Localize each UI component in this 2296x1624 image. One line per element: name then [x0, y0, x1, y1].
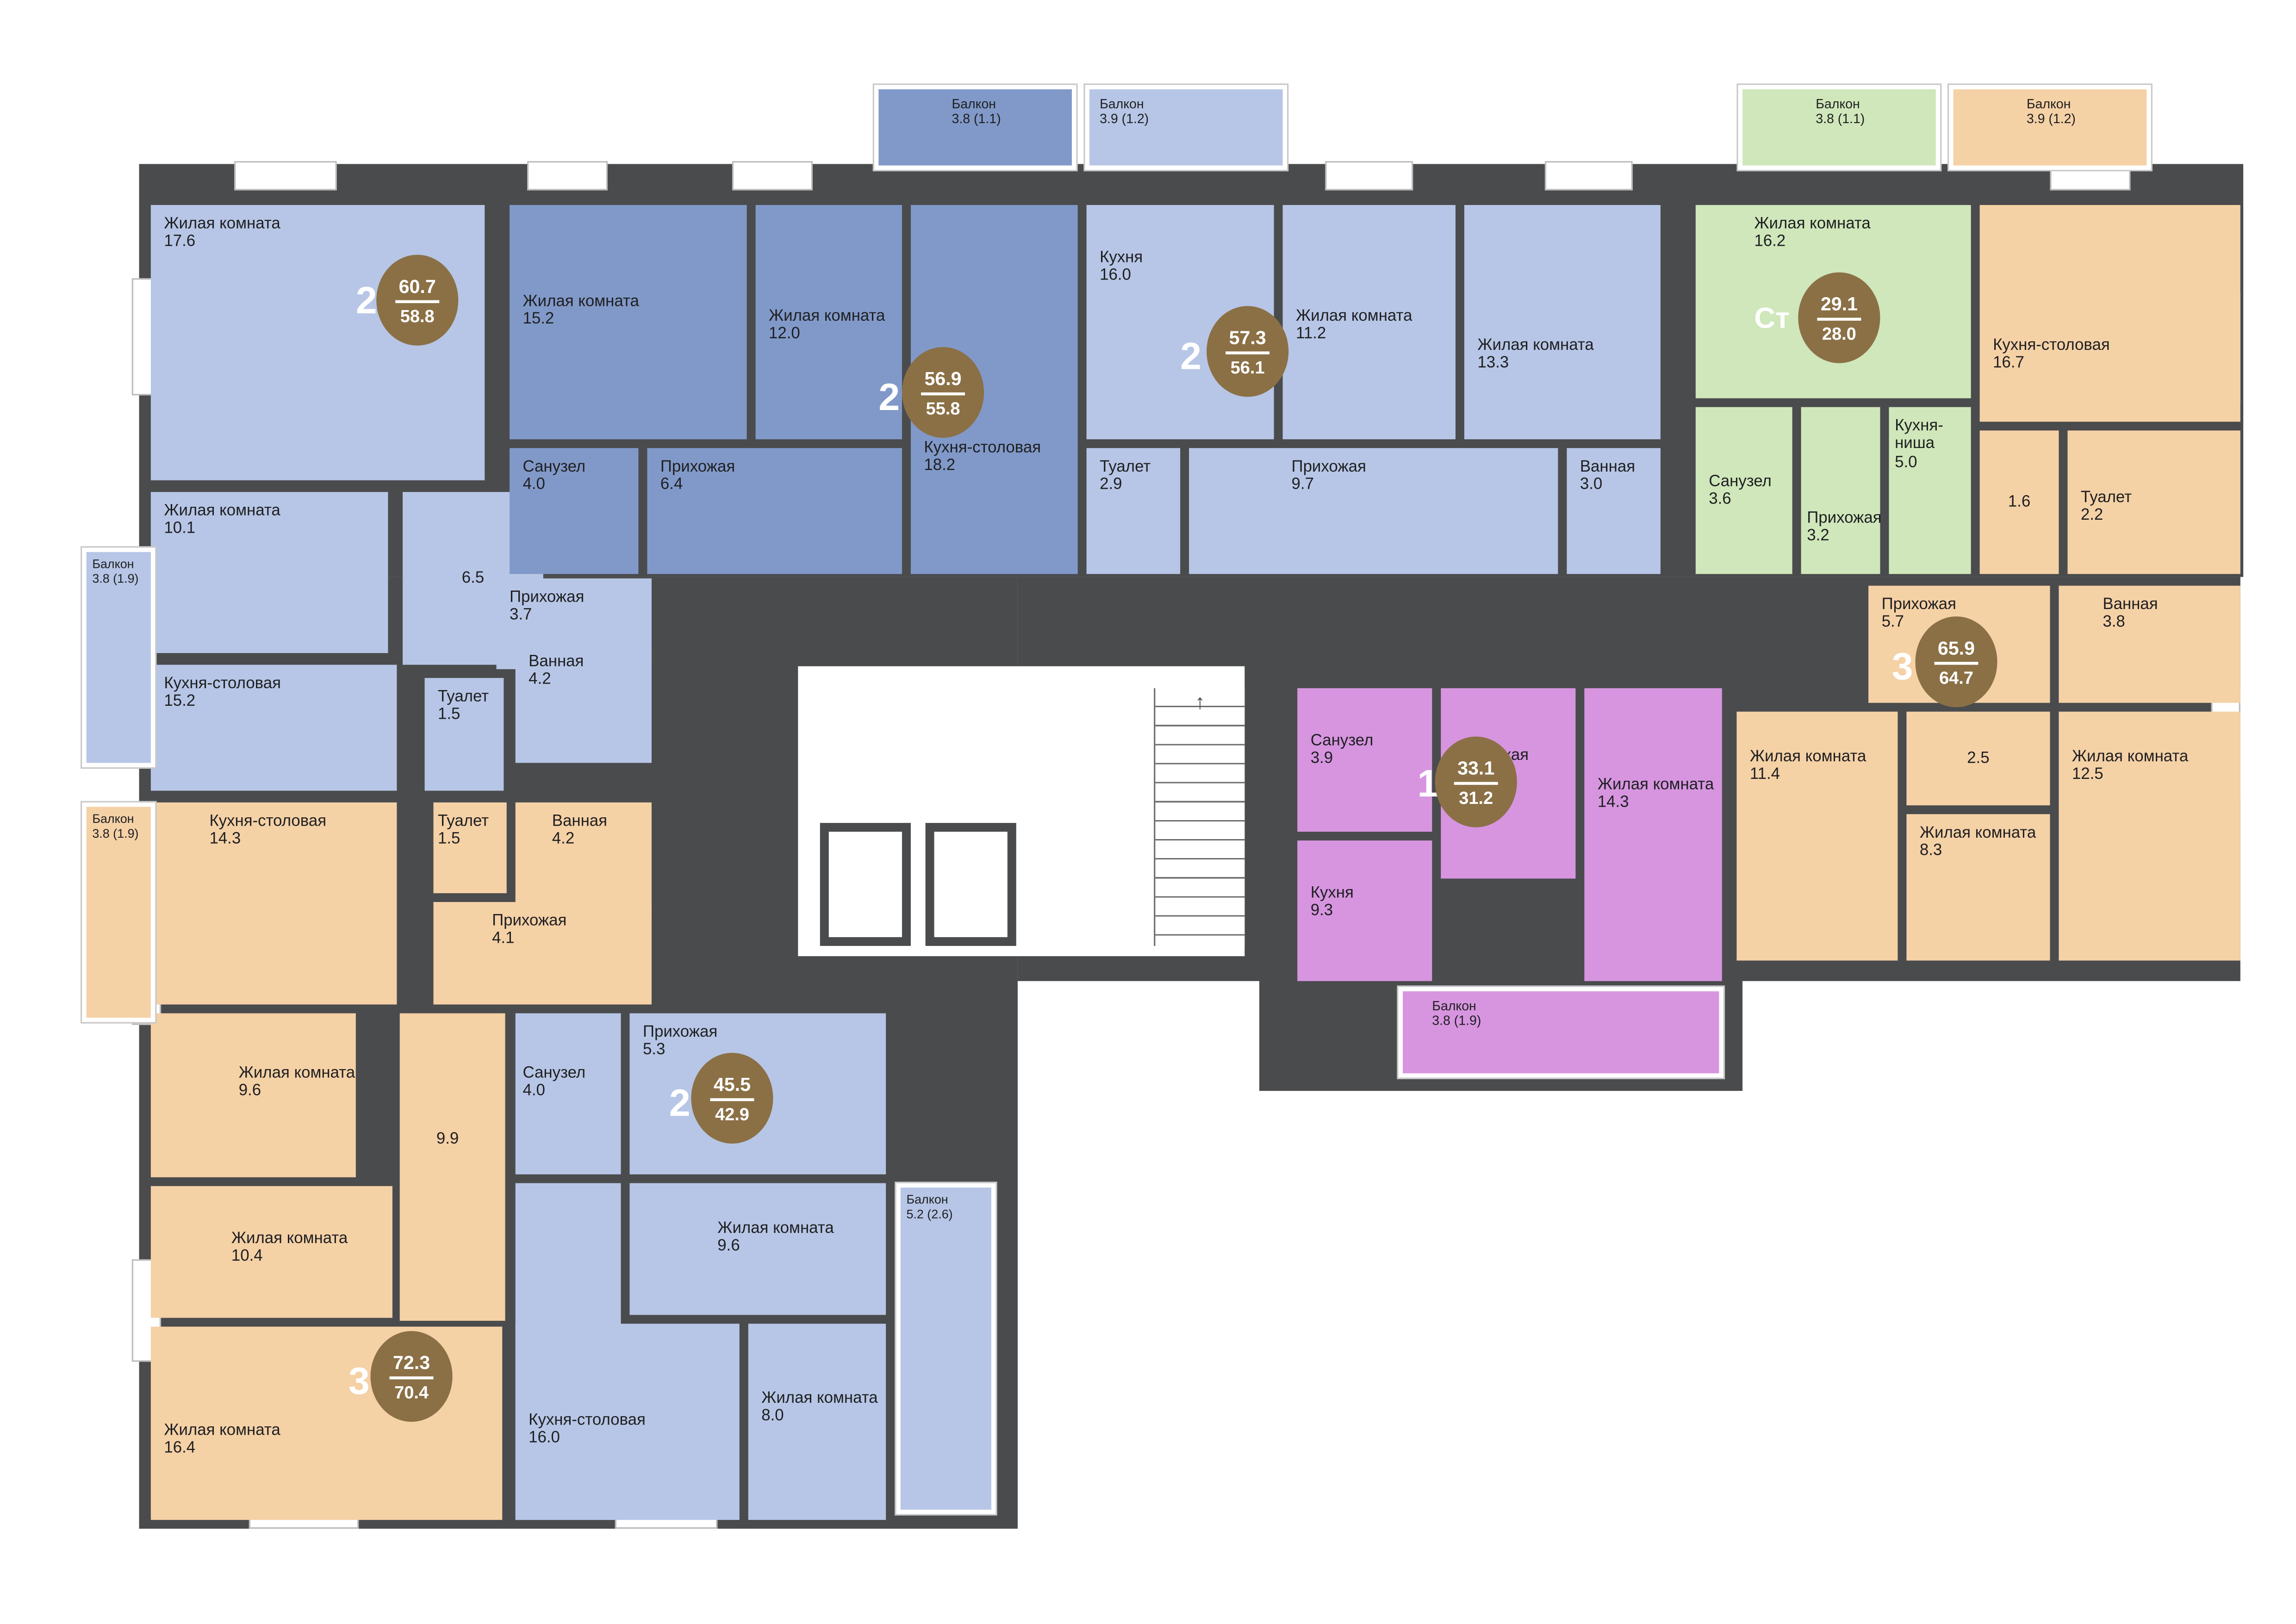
room-sanitary-4-0: Санузел4.0	[516, 1013, 621, 1174]
room-hallway-9-7: Прихожая9.7	[1189, 448, 1558, 574]
balcony-apartment-33-1: Балкон3.8 (1.9)	[1399, 987, 1724, 1077]
apartment-rooms-count: 3	[348, 1362, 370, 1400]
room-living-11-2: Жилая комната11.2	[1283, 205, 1456, 439]
room-living-17-6: Жилая комната17.6	[151, 205, 485, 480]
room-living-16-4: Жилая комната16.4	[151, 1326, 502, 1520]
room-kitchen-dining-16-0: Кухня-столовая16.0	[516, 1324, 740, 1520]
room-toilet-2-9: Туалет2.9	[1087, 448, 1180, 574]
room-sanitary-4-0: Санузел4.0	[510, 448, 638, 574]
balcony-apartment-57-3: Балкон3.9 (1.2)	[1085, 85, 1287, 170]
room-living-14-3: Жилая комната14.3	[1584, 688, 1722, 981]
room-bathroom-3-8: Ванная3.8	[2059, 586, 2240, 703]
area-badge: 33.131.2	[1435, 736, 1517, 827]
room-bathroom-3-0: Ванная3.0	[1567, 448, 1660, 574]
window-slot	[527, 161, 608, 190]
apartment-2k-56-9[interactable]: Жилая комната15.2 Жилая комната12.0 Кухн…	[510, 205, 1078, 574]
elevator-shaft-1	[820, 823, 911, 946]
area-badge: 45.542.9	[691, 1053, 773, 1144]
room-toilet-1-5: Туалет1.5	[425, 678, 504, 791]
room-toilet-2-2: Туалет2.2	[2067, 430, 2240, 574]
area-badge: 60.758.8	[376, 255, 458, 346]
room-hallway-4-1: Прихожая4.1	[434, 902, 652, 1004]
room-living-11-4: Жилая комната11.4	[1736, 712, 1898, 961]
area-badge: 65.964.7	[1915, 616, 1997, 707]
balcony-apartment-72-3: Балкон3.8 (1.9)	[82, 803, 155, 1022]
room-living-12-5: Жилая комната12.5	[2059, 712, 2240, 961]
window-slot	[1325, 161, 1413, 190]
room-living-10-4: Жилая комната10.4	[151, 1186, 392, 1318]
elevator-shaft-2	[926, 823, 1016, 946]
balcony-apartment-65-9: Балкон3.9 (1.2)	[1949, 85, 2151, 170]
apartment-rooms-count: 2	[878, 378, 900, 416]
room-corridor-2-5: 2.5	[1906, 712, 2050, 805]
apartment-rooms-count: 2	[1180, 337, 1201, 375]
room-kitchen-9-3: Кухня9.3	[1297, 840, 1432, 981]
room-living-9-6: Жилая комната9.6	[629, 1183, 886, 1315]
balcony-apartment-45-5: Балкон5.2 (2.6)	[896, 1183, 996, 1514]
apartment-2k-57-3[interactable]: Кухня16.0 Жилая комната11.2 Жилая комнат…	[1087, 205, 1661, 574]
window-slot	[732, 161, 813, 190]
room-kitchen-dining-14-3: Кухня-столовая14.3	[151, 803, 397, 1005]
window-slot	[234, 161, 336, 190]
room-corridor-9-9: 9.9	[400, 1013, 505, 1320]
floor-plan: ↑ Жилая комната17.6 Жилая комната10.1 Ку…	[0, 0, 2296, 1624]
area-badge: 56.955.8	[902, 347, 984, 438]
area-badge: 72.370.4	[370, 1331, 452, 1422]
apartment-rooms-count: 3	[1892, 647, 1913, 685]
room-living-9-6: Жилая комната9.6	[151, 1013, 356, 1177]
window-slot	[1545, 161, 1633, 190]
room-living-8-3: Жилая комната8.3	[1906, 814, 2050, 960]
apartment-2k-45-5[interactable]: Санузел4.0 Прихожая5.3 Жилая комната9.6 …	[516, 1013, 886, 1520]
room-sanitary-3-9: Санузел3.9	[1297, 688, 1432, 832]
room-living-10-1: Жилая комната10.1	[151, 492, 388, 653]
room-living-13-3: Жилая комната13.3	[1464, 205, 1661, 439]
apartment-rooms-count: 2	[356, 281, 377, 319]
room-toilet-1-5: Туалет1.5	[434, 803, 507, 893]
stairs-up-arrow: ↑	[1195, 691, 1205, 711]
room-bathroom-4-2: Ванная4.2	[516, 643, 652, 763]
apartment-rooms-count: 2	[669, 1083, 691, 1121]
balcony-apartment-60-7: Балкон3.8 (1.9)	[82, 548, 155, 767]
room-kitchen-dining-15-2: Кухня-столовая15.2	[151, 665, 397, 790]
area-badge: 29.128.0	[1798, 272, 1880, 363]
room-hallway-6-4: Прихожая6.4	[647, 448, 902, 574]
room-kitchen-dining-16-7: Кухня-столовая16.7	[1980, 205, 2240, 422]
apartment-1k-33-1[interactable]: Санузел3.9 Прихожая3.7 Кухня9.3 Жилая ко…	[1297, 688, 1722, 981]
room-living-15-2: Жилая комната15.2	[510, 205, 747, 439]
balcony-apartment-56-9: Балкон3.8 (1.1)	[874, 85, 1076, 170]
staircase: ↑	[1154, 688, 1244, 946]
area-badge: 57.356.1	[1207, 306, 1288, 397]
room-corridor-1-6: 1.6	[1980, 430, 2059, 574]
room-living-8-0: Жилая комната8.0	[748, 1324, 886, 1520]
balcony-apartment-29-1: Балкон3.8 (1.1)	[1738, 85, 1941, 170]
